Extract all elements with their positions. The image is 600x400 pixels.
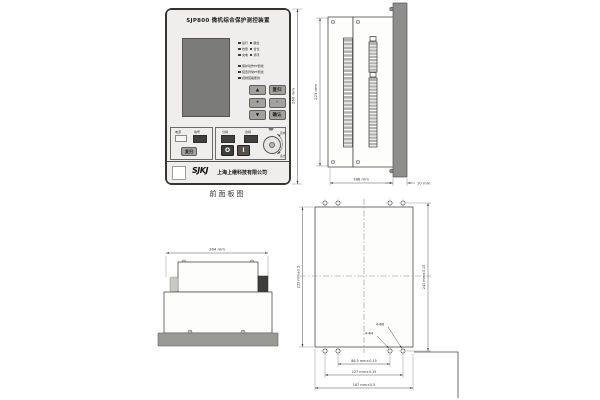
- drawing-sheet: SJP800 微机综合保护测控装置 运行 跳位 告警 合位 充电 通讯 保护动: [0, 0, 600, 400]
- led-indicator-block: 运行 跳位 告警 合位 充电 通讯 保护动作PT断线 装置异常PT断线: [238, 40, 288, 81]
- connector-cap: [370, 73, 376, 78]
- led-label: 控制回路断线: [242, 76, 260, 80]
- open-button: O: [221, 145, 234, 156]
- terminal-block: [258, 276, 268, 292]
- keypad-button-up: ▲: [249, 85, 266, 95]
- side-body-left: [328, 17, 353, 167]
- led-label: 运行: [242, 41, 248, 45]
- keypad: ▲ 复归 + - ▼ 确认: [249, 85, 286, 120]
- company-name: 上海上继科技有限公司: [217, 169, 267, 176]
- dimension-drawings: 260 mm 223 mm: [0, 0, 600, 400]
- aux-label: 信号: [194, 130, 200, 134]
- dim-cutout-width: 167 mm±0.5: [353, 383, 375, 387]
- mounting-hole: [386, 347, 395, 356]
- dim-front-height: 260 mm: [291, 88, 296, 104]
- led-indicator: [238, 54, 241, 57]
- panel-edge: [414, 352, 458, 398]
- led-indicator: [238, 77, 241, 80]
- led-indicator: [238, 48, 241, 51]
- keypad-button-reset: 复归: [269, 85, 286, 95]
- trip-window: [221, 135, 235, 143]
- side-view: 223 mm 188 mm 10 mm: [313, 3, 431, 186]
- mounting-hole: [321, 199, 330, 208]
- dim-cutout-outer-height: 240 mm±0.15: [422, 265, 426, 290]
- mounting-hole: [321, 347, 330, 356]
- panel-screw: [188, 330, 192, 334]
- mounting-hole: [399, 347, 408, 356]
- rotary-switch: [263, 136, 281, 154]
- op-label: 分闸: [222, 130, 228, 134]
- panel-screw: [390, 169, 394, 173]
- close-button: I: [237, 145, 250, 156]
- mounting-clip: [170, 277, 178, 292]
- front-panel-face: SJP800 微机综合保护测控装置 运行 跳位 告警 合位 充电 通讯 保护动: [167, 10, 289, 183]
- front-panel-view: SJP800 微机综合保护测控装置 运行 跳位 告警 合位 充电 通讯 保护动: [165, 8, 291, 185]
- front-bezel-side: [393, 3, 407, 177]
- screw: [331, 160, 335, 164]
- led-indicator: [238, 71, 241, 74]
- close-window: [244, 135, 258, 143]
- operation-section: 分闸 合闸 O I: [215, 127, 286, 160]
- dim-side-depth: 188 mm: [353, 177, 369, 182]
- cutout-view: 225 mm±0.5 240 mm±0.15 4-Φ6 4-Φ4 86.5 mm…: [297, 199, 459, 399]
- keypad-button-plus: +: [249, 98, 266, 108]
- dim-panel-thickness: 10 mm: [417, 180, 431, 185]
- screw: [182, 260, 185, 263]
- dim-hole-span-inner: 86.5 mm±0.15: [351, 359, 377, 363]
- aux-label: 电源: [175, 130, 181, 134]
- screw: [331, 20, 335, 24]
- connector-bottom-outline: [369, 78, 377, 147]
- case-rear: [178, 262, 258, 292]
- aux-section: 电源 信号 复归: [170, 127, 213, 160]
- led-label: 告警: [242, 47, 248, 51]
- led-label: 充电: [242, 53, 248, 57]
- cutout-rectangle: [315, 207, 413, 347]
- led-long-block: 保护动作PT断线 装置异常PT断线 控制回路断线: [238, 63, 288, 81]
- dim-side-height: 223 mm: [313, 84, 318, 100]
- mounting-hole: [334, 347, 343, 356]
- power-indicator: [175, 135, 187, 142]
- front-bezel-top: [158, 333, 278, 346]
- screw: [356, 160, 360, 164]
- dim-cutout-height: 225 mm±0.5: [297, 266, 301, 288]
- terminal-strip-outline: [344, 38, 353, 147]
- mounting-hole: [334, 199, 343, 208]
- signal-window: [193, 135, 207, 143]
- front-height-dimension: 260 mm: [291, 9, 303, 184]
- screw: [250, 260, 253, 263]
- dim-top-width: 164 mm: [209, 247, 225, 252]
- brand-logo: SJKJ: [192, 166, 208, 175]
- side-body-right: [353, 17, 397, 167]
- mounting-hole: [399, 199, 408, 208]
- led-indicator: [250, 48, 253, 51]
- led-row: 充电 通讯: [238, 52, 288, 58]
- lcd-screen: [182, 38, 230, 117]
- hole-note: 4-Φ6: [376, 323, 384, 327]
- led-indicator: [238, 65, 241, 68]
- screw: [356, 20, 360, 24]
- led-label: 通讯: [254, 53, 260, 57]
- led-indicator: [238, 42, 241, 45]
- label-window: [172, 166, 186, 180]
- reset-button: 复归: [181, 147, 197, 156]
- led-indicator: [250, 42, 253, 45]
- brand-bar: SJKJ 上海上继科技有限公司: [167, 161, 289, 183]
- led-label: 装置异常PT断线: [242, 70, 264, 74]
- led-indicator: [250, 54, 253, 57]
- case-front: [164, 292, 272, 333]
- hole-note: 4-Φ4: [365, 332, 373, 336]
- keypad-button-down: ▼: [249, 110, 266, 120]
- keypad-button-confirm: 确认: [269, 110, 286, 120]
- led-row: 控制回路断线: [238, 75, 288, 81]
- panel-screw: [390, 7, 394, 11]
- dim-hole-span-outer: 127 mm±0.15: [352, 370, 377, 374]
- front-view-caption: 前面板图: [185, 189, 270, 199]
- connector-cap: [370, 37, 376, 42]
- mounting-hole: [386, 199, 395, 208]
- keypad-button-minus: -: [269, 98, 286, 108]
- led-label: 跳位: [254, 41, 260, 45]
- op-label: 合闸: [245, 130, 251, 134]
- connector-top-outline: [369, 42, 377, 72]
- led-label: 保护动作PT断线: [242, 64, 264, 68]
- rotary-knob: [269, 142, 275, 148]
- panel-screw: [241, 330, 245, 334]
- top-view: 164 mm: [158, 247, 278, 346]
- device-title: SJP800 微机综合保护测控装置: [167, 16, 289, 24]
- led-label: 合位: [254, 47, 260, 51]
